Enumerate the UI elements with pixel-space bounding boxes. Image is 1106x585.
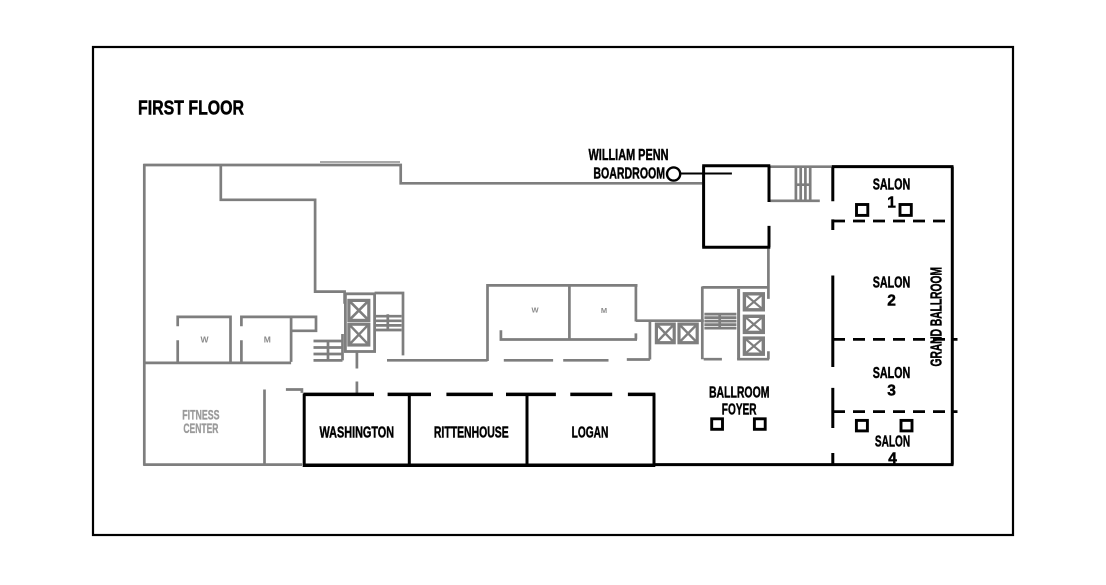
svg-text:BOARDROOM: BOARDROOM [593, 166, 665, 183]
svg-text:1: 1 [887, 195, 896, 212]
svg-text:GRAND BALLROOM: GRAND BALLROOM [929, 267, 946, 367]
svg-text:M: M [601, 306, 607, 315]
svg-text:WILLIAM PENN: WILLIAM PENN [589, 147, 669, 164]
svg-text:4: 4 [888, 451, 897, 468]
svg-text:FOYER: FOYER [722, 401, 757, 418]
svg-text:SALON: SALON [875, 434, 910, 451]
svg-text:WASHINGTON: WASHINGTON [320, 425, 395, 442]
svg-text:BALLROOM: BALLROOM [709, 385, 770, 402]
svg-text:FIRST FLOOR: FIRST FLOOR [138, 97, 244, 120]
svg-text:2: 2 [887, 292, 896, 309]
svg-text:SALON: SALON [873, 275, 911, 292]
svg-text:SALON: SALON [873, 365, 911, 382]
svg-text:M: M [264, 335, 271, 345]
svg-text:W: W [200, 335, 209, 345]
svg-text:LOGAN: LOGAN [572, 425, 609, 442]
svg-text:3: 3 [887, 383, 896, 400]
svg-text:CENTER: CENTER [183, 420, 218, 436]
svg-text:RITTENHOUSE: RITTENHOUSE [434, 425, 509, 442]
svg-text:SALON: SALON [873, 177, 911, 194]
svg-text:W: W [531, 306, 539, 315]
